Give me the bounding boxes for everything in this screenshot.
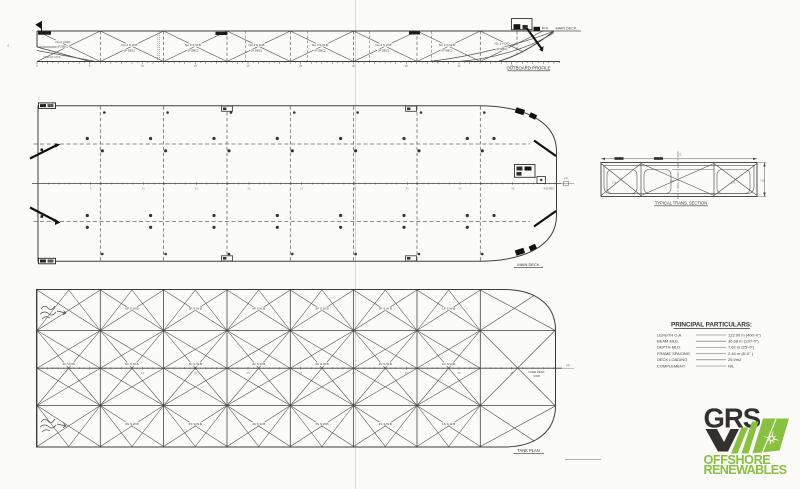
- svg-text:TYPICAL TRANS. SECTION: TYPICAL TRANS. SECTION: [655, 200, 707, 205]
- svg-text:25 t/m2: 25 t/m2: [728, 357, 742, 362]
- svg-text:30: 30: [352, 371, 356, 375]
- svg-text:BEAM MLD.: BEAM MLD.: [657, 339, 679, 344]
- svg-text:DEPTH MLD.: DEPTH MLD.: [657, 345, 681, 350]
- svg-text:No.2 S.W.B: No.2 S.W.B: [185, 43, 201, 47]
- svg-text:PRINCIPAL PARTICULARS:: PRINCIPAL PARTICULARS:: [671, 321, 752, 328]
- svg-text:3C S.W.B: 3C S.W.B: [315, 362, 328, 366]
- svg-text:30: 30: [352, 64, 356, 68]
- svg-text:5P S.W.B: 5P S.W.B: [189, 307, 202, 311]
- svg-text:10: 10: [141, 64, 145, 68]
- svg-text:1P S.W.B: 1P S.W.B: [442, 307, 455, 311]
- svg-text:40: 40: [457, 64, 461, 68]
- svg-text:MAIN DECK: MAIN DECK: [555, 26, 577, 30]
- svg-text:No.1 S.W.B: No.1 S.W.B: [439, 43, 455, 47]
- svg-text:(P.SBC): (P.SBC): [58, 45, 69, 49]
- svg-text:(P.SBC): (P.SBC): [378, 49, 389, 53]
- svg-text:4C S.W.B: 4C S.W.B: [252, 362, 265, 366]
- svg-text:0: 0: [36, 64, 38, 68]
- svg-text:(P.SBC): (P.SBC): [188, 49, 199, 53]
- svg-text:10: 10: [141, 371, 145, 375]
- svg-text:10: 10: [142, 186, 146, 190]
- svg-text:2C S.W.B: 2C S.W.B: [379, 362, 392, 366]
- svg-text:(P.SBC): (P.SBC): [124, 49, 135, 53]
- svg-text:45: 45: [510, 371, 514, 375]
- svg-text:2.44 m (8'-0" ): 2.44 m (8'-0" ): [728, 351, 754, 356]
- svg-text:30: 30: [353, 186, 357, 190]
- svg-text:7.62: 7.62: [760, 180, 765, 183]
- svg-text:5: 5: [90, 186, 92, 190]
- svg-text:6C S.W.B: 6C S.W.B: [125, 362, 138, 366]
- svg-text:20: 20: [247, 186, 251, 190]
- svg-text:15: 15: [195, 186, 199, 190]
- svg-text:B.L.E: B.L.E: [542, 26, 549, 30]
- svg-text:6S S.W.B: 6S S.W.B: [125, 422, 138, 426]
- svg-text:2S S.W.B: 2S S.W.B: [379, 422, 392, 426]
- svg-text:25: 25: [299, 371, 303, 375]
- svg-text:20: 20: [246, 64, 250, 68]
- svg-text:No.4 S.W.B: No.4 S.W.B: [249, 43, 265, 47]
- svg-text:35: 35: [405, 371, 409, 375]
- svg-text:2C VOID: 2C VOID: [62, 362, 75, 366]
- svg-text:40: 40: [457, 371, 461, 375]
- svg-text:5S S.W.B: 5S S.W.B: [189, 422, 202, 426]
- svg-text:15: 15: [194, 64, 198, 68]
- svg-text:DECK LOADING: DECK LOADING: [657, 357, 687, 362]
- svg-text:40: 40: [458, 186, 462, 190]
- svg-text:No.3 S.W.B: No.3 S.W.B: [312, 43, 328, 47]
- svg-text:3P S.W.B: 3P S.W.B: [315, 307, 328, 311]
- svg-text:VOID: VOID: [533, 374, 540, 378]
- svg-text:ℒ: ℒ: [679, 153, 682, 157]
- svg-text:7.62 m (25'-0"): 7.62 m (25'-0"): [728, 345, 755, 350]
- svg-text:45: 45: [511, 186, 515, 190]
- svg-text:6P S.W.B: 6P S.W.B: [125, 307, 138, 311]
- svg-text:4.00 REV: 4.00 REV: [543, 187, 554, 191]
- svg-text:4P S.W.B: 4P S.W.B: [252, 307, 265, 311]
- svg-text:No.4 S.W.B: No.4 S.W.B: [122, 43, 138, 47]
- svg-text:No.2 VOID: No.2 VOID: [56, 40, 72, 44]
- svg-text:36.58 m (120'-0"): 36.58 m (120'-0"): [728, 339, 759, 344]
- svg-text:FRAME SPACING: FRAME SPACING: [657, 351, 690, 356]
- svg-text:5C S.W.B: 5C S.W.B: [189, 362, 202, 366]
- svg-text:20: 20: [246, 371, 250, 375]
- svg-text:1.50: 1.50: [731, 183, 736, 185]
- svg-text:MAIN DECK: MAIN DECK: [517, 262, 540, 267]
- svg-text:5: 5: [89, 64, 91, 68]
- svg-text:OUTBOARD PROFILE: OUTBOARD PROFILE: [507, 65, 551, 70]
- svg-text:1.50: 1.50: [670, 181, 675, 183]
- svg-text:35: 35: [405, 64, 409, 68]
- svg-text:(P.SBC): (P.SBC): [251, 49, 262, 53]
- svg-text:No.1 VOID: No.1 VOID: [495, 42, 511, 46]
- svg-text:NIL: NIL: [728, 363, 735, 368]
- svg-text:F.P: F.P: [564, 177, 568, 181]
- svg-text:1C S.W.B: 1C S.W.B: [442, 362, 455, 366]
- svg-text:25: 25: [300, 186, 304, 190]
- svg-text:No.2 S.W.B: No.2 S.W.B: [376, 43, 392, 47]
- svg-text:(P.SBC): (P.SBC): [442, 49, 453, 53]
- svg-text:(P.SBC): (P.SBC): [497, 47, 508, 51]
- svg-text:15: 15: [194, 371, 198, 375]
- svg-text:TANK PLAN: TANK PLAN: [517, 448, 539, 453]
- svg-text:RENEWABLES: RENEWABLES: [704, 463, 787, 477]
- svg-text:4S S.W.B: 4S S.W.B: [252, 422, 265, 426]
- svg-text:3S S.W.B: 3S S.W.B: [315, 422, 328, 426]
- svg-text:F.P: F.P: [566, 365, 570, 368]
- svg-text:MARSH GATE: MARSH GATE: [44, 55, 61, 59]
- svg-text:1.50: 1.50: [612, 183, 617, 185]
- svg-text:1S S.W.B: 1S S.W.B: [442, 422, 455, 426]
- svg-text:COMPLEMENT: COMPLEMENT: [657, 363, 686, 368]
- svg-text:122.00 m (400'-0"): 122.00 m (400'-0"): [728, 332, 762, 337]
- svg-text:25: 25: [299, 64, 303, 68]
- svg-text:4: 4: [7, 43, 10, 48]
- svg-text:35: 35: [406, 186, 410, 190]
- svg-text:(P.SBC): (P.SBC): [315, 49, 326, 53]
- svg-text:LENGTH O.A.: LENGTH O.A.: [657, 332, 682, 337]
- svg-text:2P S.W.B: 2P S.W.B: [379, 307, 392, 311]
